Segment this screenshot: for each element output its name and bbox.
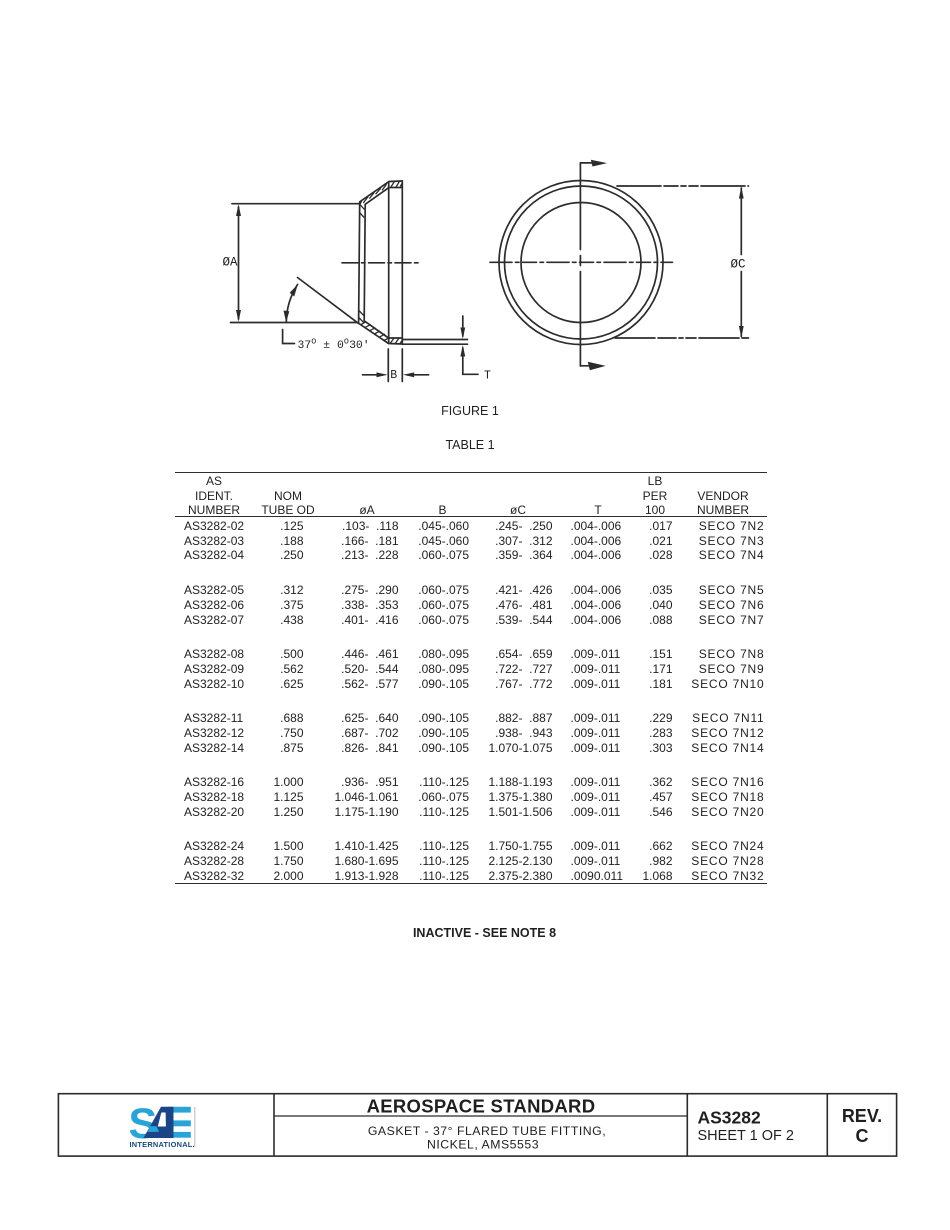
- svg-text:T: T: [484, 369, 491, 382]
- svg-text:GASKET - 37° FLARED TUBE FITTI: GASKET - 37° FLARED TUBE FITTING,: [368, 1124, 606, 1138]
- svg-text:ØC: ØC: [731, 258, 746, 272]
- svg-text:AEROSPACE STANDARD: AEROSPACE STANDARD: [367, 1096, 596, 1117]
- svg-text:C: C: [856, 1126, 869, 1146]
- svg-text:B: B: [390, 369, 397, 382]
- svg-text:ØA: ØA: [223, 256, 239, 270]
- svg-text:SHEET 1 OF 2: SHEET 1 OF 2: [698, 1128, 794, 1144]
- svg-text:NICKEL, AMS5553: NICKEL, AMS5553: [427, 1137, 539, 1151]
- svg-text:REV.: REV.: [842, 1106, 882, 1126]
- svg-text:INTERNATIONAL.: INTERNATIONAL.: [130, 1140, 195, 1149]
- svg-text:AS3282: AS3282: [698, 1108, 762, 1128]
- svg-text:37o ± 0o30': 37o ± 0o30': [298, 336, 370, 352]
